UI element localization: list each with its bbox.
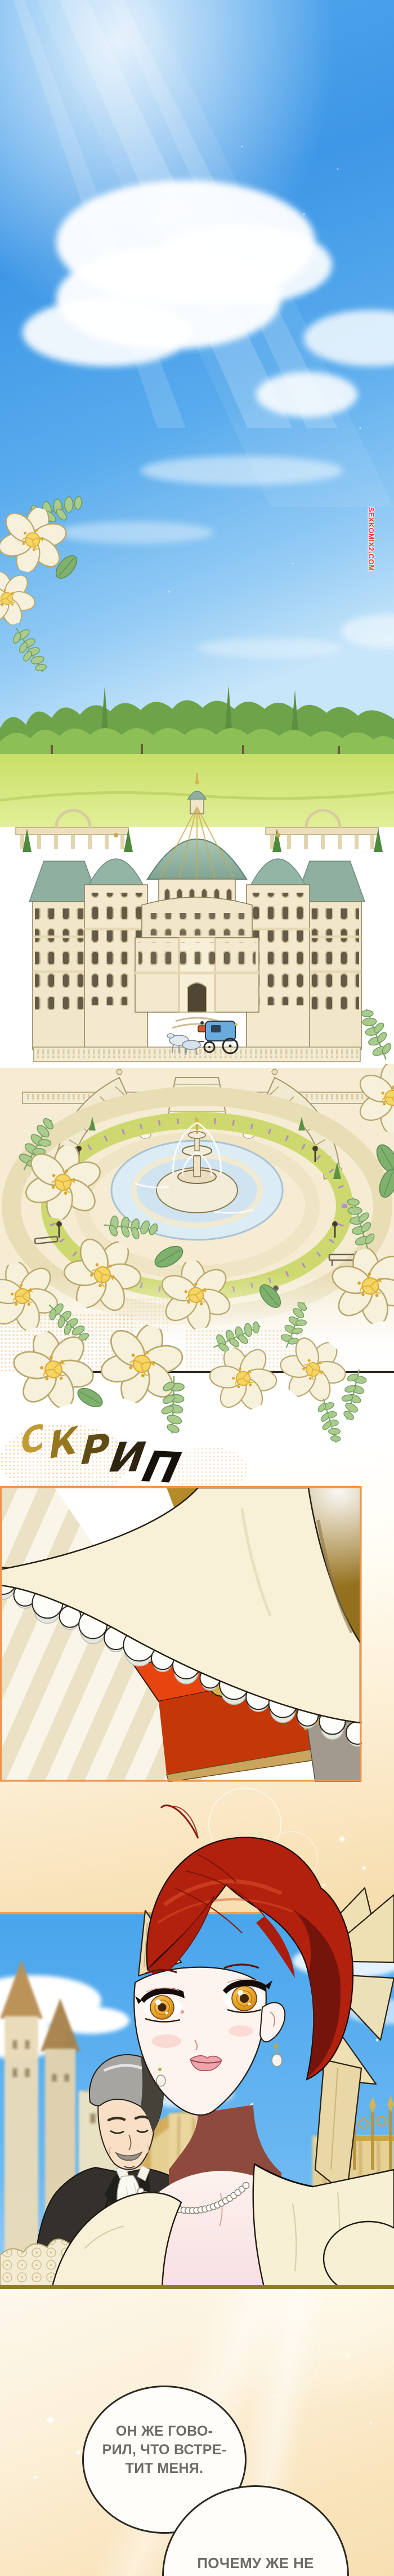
horse bbox=[182, 1040, 200, 1049]
speech-text: ПОЧЕМУ ЖЕ НЕ bbox=[164, 2553, 347, 2573]
sparkle: ✦ bbox=[344, 2352, 350, 2359]
panel-bottom-border bbox=[0, 2285, 394, 2289]
sparkle: ✦ bbox=[75, 2449, 82, 2457]
blush bbox=[229, 2025, 253, 2037]
panel-bottom-line bbox=[83, 1371, 394, 1373]
sparkle: ✦ bbox=[45, 2414, 55, 2427]
bubble-line: РИЛ, ЧТО ВСТРЕ- bbox=[84, 2441, 245, 2459]
sky bbox=[0, 0, 394, 758]
sparkle: ✦ bbox=[369, 2421, 373, 2426]
scene-panel-illustration bbox=[0, 0, 394, 1373]
speech-text: ОН ЖЕ ГОВО- РИЛ, ЧТО ВСТРЕ- ТИТ МЕНЯ. bbox=[84, 2422, 245, 2478]
bubble-line: ОН ЖЕ ГОВО- bbox=[84, 2422, 245, 2441]
site-watermark: SEXKOMIX2.COM bbox=[364, 507, 375, 593]
bubble-line: ТИТ МЕНЯ. bbox=[84, 2459, 245, 2478]
heroine-panel bbox=[0, 1775, 394, 2289]
light-circle bbox=[236, 2312, 321, 2396]
comic-page: ✦ ✦ ✦ СКРИП bbox=[0, 0, 394, 2576]
ahoge-strand bbox=[171, 1806, 198, 1838]
blush bbox=[152, 2034, 181, 2048]
footstool-panel bbox=[0, 1486, 362, 1782]
sparkle: ✦ bbox=[33, 2475, 38, 2481]
